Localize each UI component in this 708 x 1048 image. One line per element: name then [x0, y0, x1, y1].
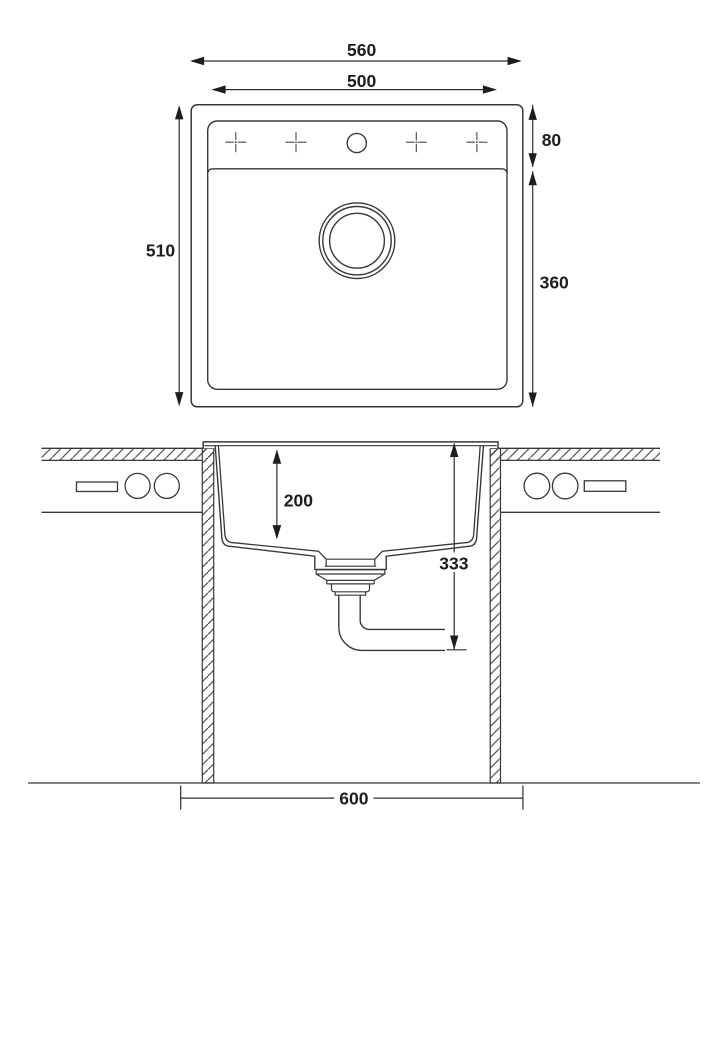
svg-text:360: 360 — [540, 272, 569, 292]
svg-text:80: 80 — [542, 130, 562, 150]
svg-text:333: 333 — [439, 553, 468, 573]
svg-text:560: 560 — [347, 40, 376, 60]
svg-text:510: 510 — [146, 241, 175, 261]
svg-text:600: 600 — [339, 789, 368, 809]
svg-text:200: 200 — [284, 491, 313, 511]
svg-text:500: 500 — [347, 71, 376, 91]
